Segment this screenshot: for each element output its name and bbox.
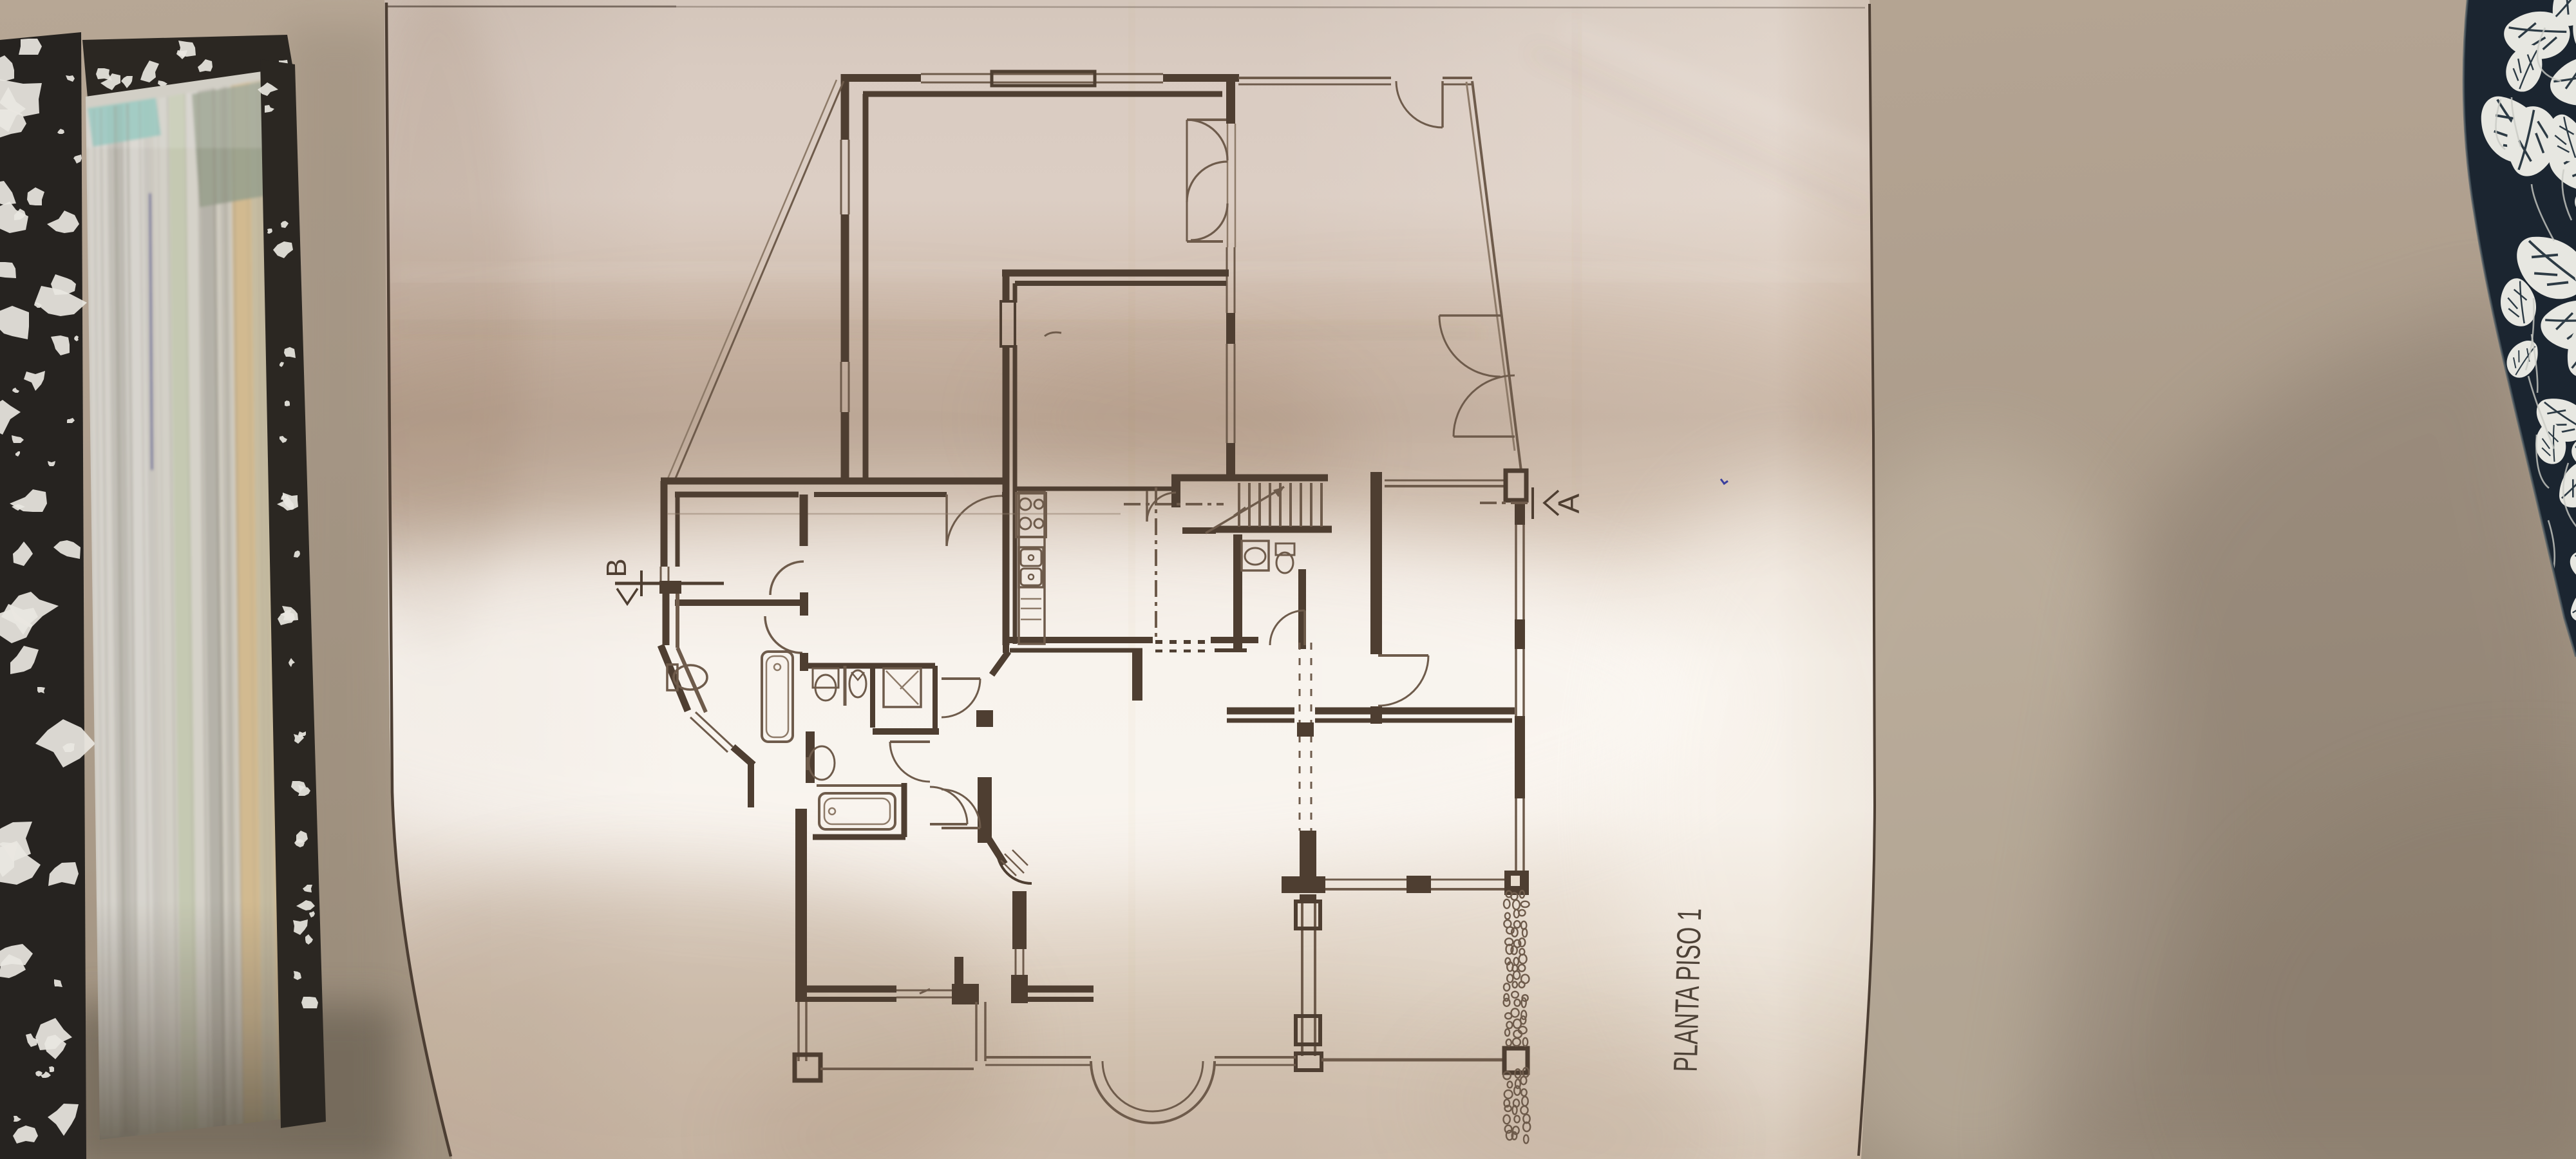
svg-text:B: B (601, 558, 632, 577)
svg-text:PLANTA PISO 1: PLANTA PISO 1 (1667, 908, 1709, 1072)
svg-text:A: A (1552, 493, 1586, 514)
